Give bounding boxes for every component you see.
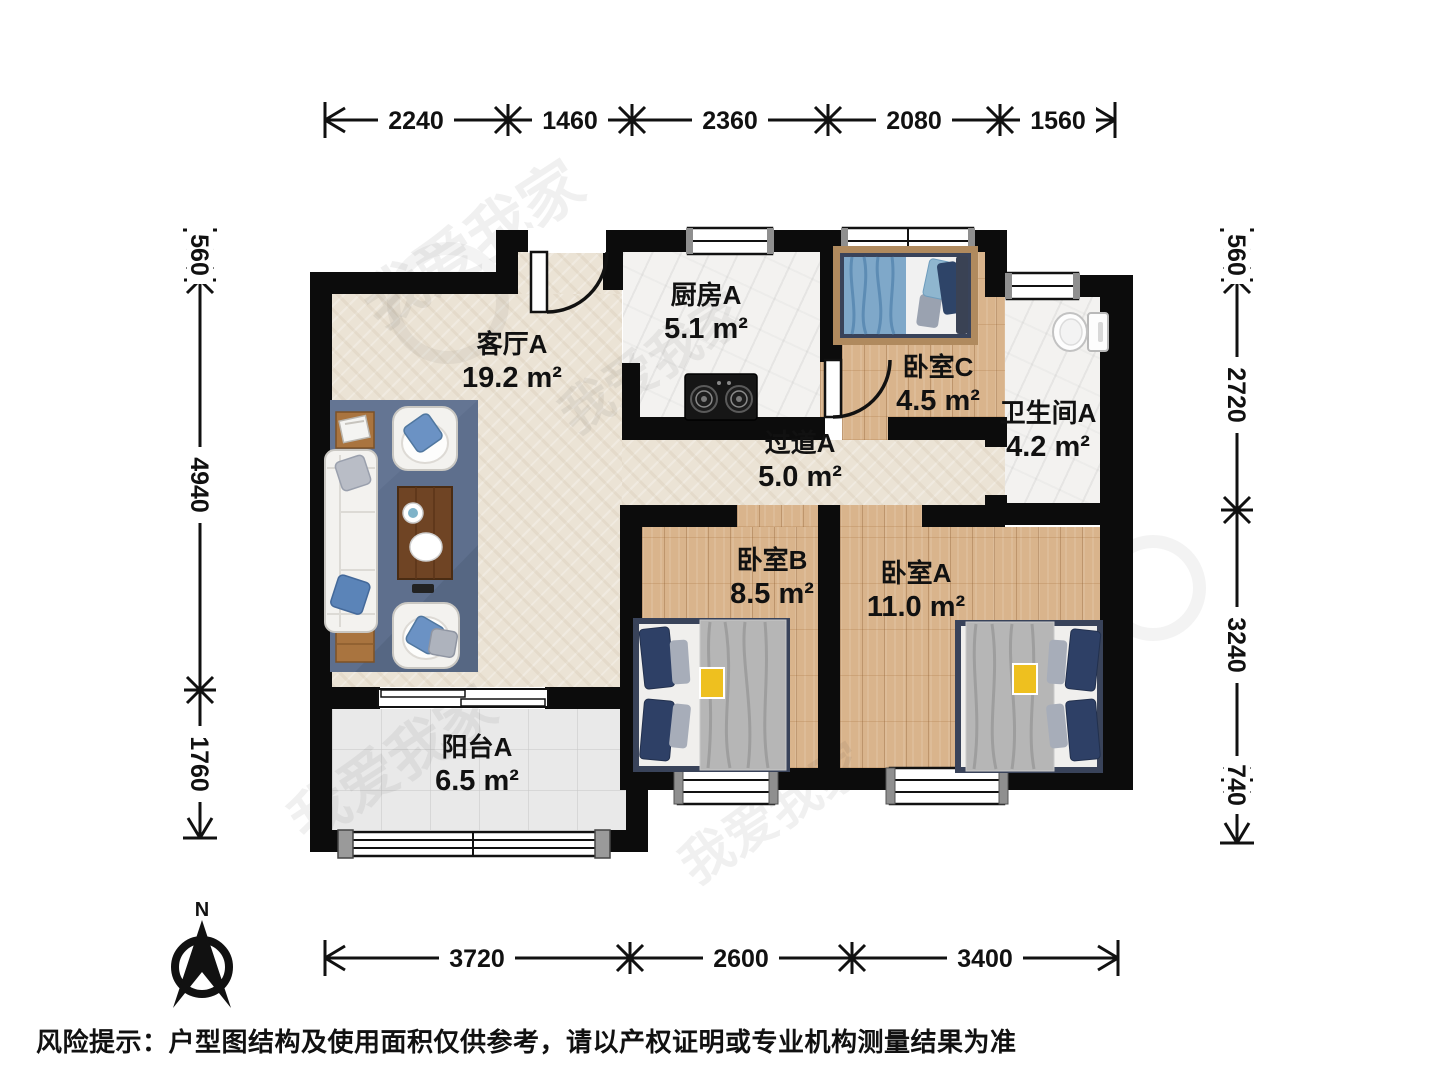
wall (310, 687, 380, 709)
wall (310, 272, 332, 852)
room-label-bathroom: 卫生间A 4.2 m² (1000, 397, 1097, 465)
balcony-floor (332, 709, 626, 830)
wall (985, 495, 1007, 525)
brand-logo-watermark (387, 242, 509, 364)
wall (1100, 275, 1133, 790)
wall (1005, 503, 1100, 525)
balcony-sliding-door (378, 689, 548, 707)
living-room-furniture (325, 400, 478, 672)
wall (496, 230, 518, 294)
svg-text:2080: 2080 (886, 107, 942, 135)
balcony-window (338, 830, 610, 858)
room-label-living: 客厅A 19.2 m² (462, 328, 562, 396)
svg-text:4940: 4940 (185, 457, 213, 513)
bedroom-c-window (841, 228, 975, 254)
bed-c (833, 246, 978, 345)
room-area: 19.2 m² (462, 361, 562, 396)
bedroom-c-floor (842, 252, 1005, 417)
room-name: 卫生间A (1000, 397, 1097, 430)
wall (620, 505, 642, 790)
brand-text-watermark: 我爱我家 (341, 135, 598, 346)
room-name: 厨房A (664, 279, 748, 312)
side-table (336, 626, 374, 662)
dimension-labels-left: 560 4940 1760 (185, 226, 213, 802)
wall (622, 417, 825, 440)
room-area: 4.2 m² (1000, 430, 1097, 465)
wall (545, 687, 648, 709)
risk-disclaimer: 风险提示：户型图结构及使用面积仅供参考，请以产权证明或专业机构测量结果为准 (36, 1022, 1017, 1059)
room-name: 卧室A (867, 557, 965, 590)
room-label-bedroom-a: 卧室A 11.0 m² (867, 557, 965, 625)
room-label-bedroom-b: 卧室B 8.5 m² (730, 544, 814, 612)
wall (310, 830, 348, 852)
bed-a (955, 620, 1103, 773)
svg-text:3240: 3240 (1222, 617, 1250, 673)
wall (622, 363, 640, 419)
wall (985, 230, 1007, 297)
svg-text:1560: 1560 (1030, 107, 1086, 135)
room-area: 4.5 m² (896, 384, 980, 419)
watermark-layer: 我爱我家 我爱我家 我爱我家 我爱我家 (0, 0, 1440, 1080)
svg-text:3720: 3720 (449, 945, 505, 973)
svg-text:2600: 2600 (713, 945, 769, 973)
dimension-line-top (325, 102, 1115, 138)
wall (496, 230, 1007, 252)
armchair (393, 407, 457, 470)
bed-b (633, 618, 790, 772)
side-table (336, 412, 374, 448)
svg-text:2720: 2720 (1222, 367, 1250, 423)
entry-floor (518, 252, 622, 294)
room-name: 卧室B (730, 544, 814, 577)
dimension-labels-right: 560 2720 3240 740 (1222, 226, 1250, 814)
wall (985, 417, 1007, 447)
armchair (393, 603, 459, 668)
north-compass: N (173, 899, 231, 1008)
living-room-floor (332, 294, 622, 687)
bedroom-a-window (886, 768, 1008, 804)
floorplan-page: { "rooms": { "living": {"name": "客厅A", "… (0, 0, 1440, 1080)
bedroom-c-door (825, 360, 890, 417)
brand-logo-watermark (1100, 535, 1206, 641)
room-area: 6.5 m² (435, 764, 519, 799)
windows (338, 228, 1080, 858)
bedroom-c-door-strip (842, 417, 888, 440)
room-name: 过道A (758, 427, 842, 460)
room-label-bedroom-c: 卧室C 4.5 m² (896, 351, 980, 419)
wall (820, 252, 842, 362)
svg-text:3400: 3400 (957, 945, 1013, 973)
north-label: N (195, 899, 209, 921)
wall (603, 252, 623, 290)
svg-text:560: 560 (185, 234, 213, 276)
plan-overlay: 2240 1460 2360 2080 1560 3720 2600 3400 … (0, 0, 1440, 1080)
dimension-labels-bottom: 3720 2600 3400 (439, 945, 1023, 973)
wall (922, 505, 1005, 527)
svg-text:1460: 1460 (542, 107, 598, 135)
room-labels-layer: 客厅A 19.2 m² 厨房A 5.1 m² 卧室C 4.5 m² 卫生间A 4… (0, 0, 1440, 1080)
bedroom-b-doorway-floor (737, 505, 818, 527)
room-label-kitchen: 厨房A 5.1 m² (664, 279, 748, 347)
room-name: 卧室C (896, 351, 980, 384)
wall (600, 830, 648, 852)
room-name: 客厅A (462, 328, 562, 361)
floors-layer (0, 0, 1440, 1080)
bedroom-b-floor (642, 527, 818, 768)
entry-door (528, 228, 607, 312)
dimension-labels-top: 2240 1460 2360 2080 1560 (378, 107, 1096, 135)
room-label-balcony: 阳台A 6.5 m² (435, 731, 519, 799)
hallway-floor (622, 440, 1005, 505)
dimension-line-right (1220, 230, 1254, 843)
sofa (325, 450, 377, 632)
room-name: 阳台A (435, 731, 519, 764)
svg-text:1760: 1760 (185, 736, 213, 792)
room-area: 11.0 m² (867, 590, 965, 625)
svg-text:560: 560 (1222, 234, 1250, 276)
toilet (1053, 313, 1108, 351)
kitchen-floor (623, 252, 820, 417)
room-area: 5.0 m² (758, 460, 842, 495)
stove (685, 374, 757, 420)
wall (310, 272, 518, 294)
room-area: 5.1 m² (664, 312, 748, 347)
rug (330, 400, 478, 672)
wall (620, 505, 737, 527)
brand-text-watermark: 我爱我家 (542, 272, 757, 448)
bathroom-floor (1005, 297, 1100, 503)
wall (818, 505, 840, 768)
svg-text:740: 740 (1222, 764, 1250, 806)
brand-text-watermark: 我爱我家 (662, 722, 877, 898)
svg-text:2360: 2360 (702, 107, 758, 135)
walls-layer (0, 0, 1440, 1080)
dimension-line-bottom (325, 940, 1118, 976)
kitchen-window (686, 228, 774, 254)
wall (620, 768, 1133, 790)
brand-text-watermark: 我爱我家 (270, 662, 510, 859)
room-label-hallway: 过道A 5.0 m² (758, 427, 842, 495)
bedroom-a-floor (840, 527, 1100, 768)
svg-text:2240: 2240 (388, 107, 444, 135)
coffee-table (398, 487, 452, 593)
wall (888, 417, 1007, 440)
bedroom-b-window (674, 768, 778, 804)
wall (626, 687, 648, 852)
dimension-line-left (183, 230, 217, 838)
wall (985, 275, 1133, 297)
bedroom-a-doorway-floor (840, 505, 922, 527)
bathroom-window (1005, 273, 1080, 299)
room-area: 8.5 m² (730, 577, 814, 612)
bedroom-c-doorway-floor (820, 362, 842, 417)
